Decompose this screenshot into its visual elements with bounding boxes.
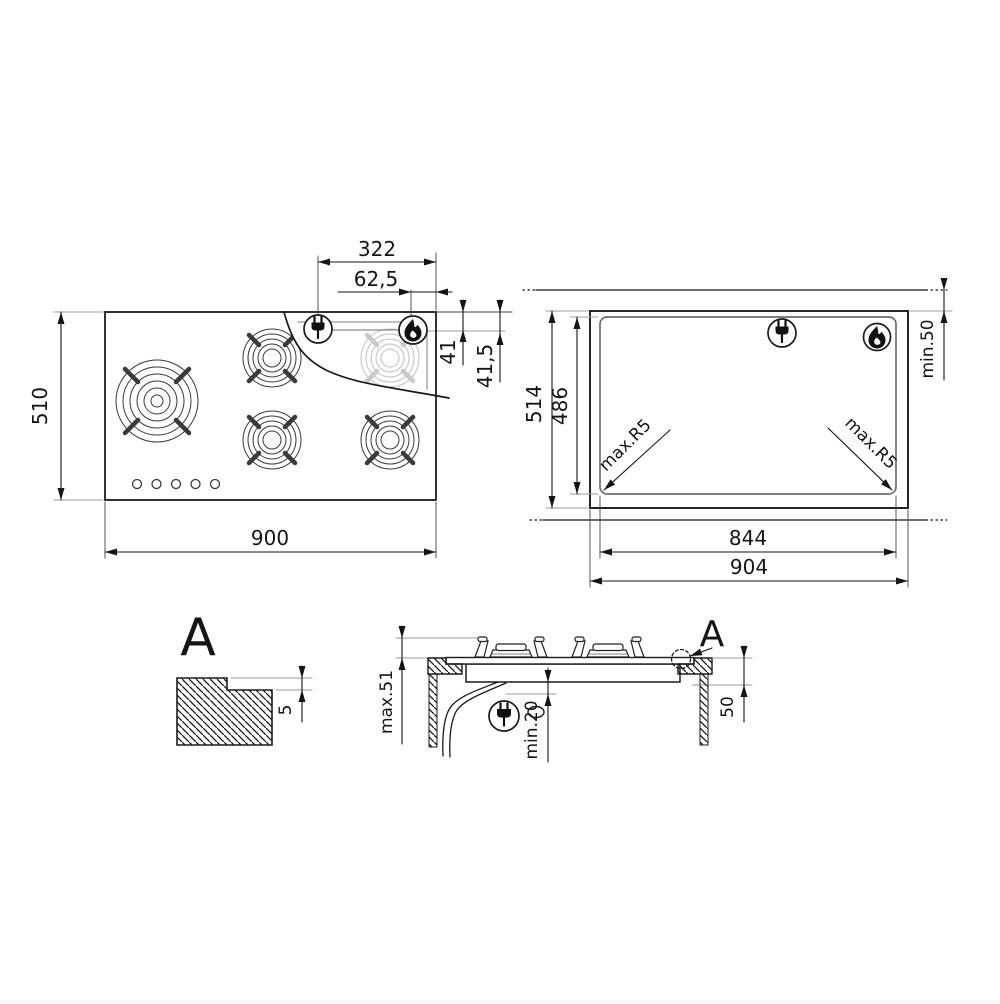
- dim-62-5: 62,5: [338, 267, 452, 316]
- burner-right-bottom: [361, 411, 419, 469]
- detail-a-title: A: [180, 608, 216, 668]
- burner-section-1: [475, 637, 547, 657]
- burner-mid-bottom: [243, 411, 301, 469]
- dim-904-label: 904: [730, 555, 768, 579]
- worktop-rebate-section: [177, 678, 272, 745]
- dim-max51-label: max.51: [377, 670, 397, 734]
- dim-min50: min.50: [910, 279, 952, 380]
- glass-panel-section: [446, 658, 694, 665]
- burner-mid-top: [243, 329, 301, 387]
- technical-diagram: 322 62,5 41 41,5: [0, 0, 1000, 1000]
- power-plug-icon: [768, 319, 796, 347]
- installation-section-view: max.51 min.20 50 A: [377, 614, 752, 762]
- hob-body-section: [466, 664, 680, 682]
- cabinet-panel-right: [700, 674, 708, 745]
- control-knobs: [133, 480, 220, 489]
- dim-62-5-label: 62,5: [354, 267, 399, 291]
- dim-322-label: 322: [358, 237, 396, 261]
- burner-large: [116, 360, 198, 442]
- dim-41-label: 41: [436, 339, 460, 364]
- power-plug-icon: [489, 701, 519, 731]
- section-detail-label: A: [700, 614, 725, 655]
- dim-510-label: 510: [28, 387, 52, 425]
- dim-41-5-label: 41,5: [473, 344, 497, 389]
- installation-diagram-page: 322 62,5 41 41,5: [0, 0, 1000, 1000]
- dim-50: 50: [718, 646, 744, 722]
- dim-844-label: 844: [729, 526, 767, 550]
- dim-41-5: 41,5: [473, 300, 500, 388]
- dim-514-label: 514: [522, 385, 546, 423]
- dim-900-label: 900: [251, 526, 289, 550]
- dim-max51: max.51: [377, 626, 402, 744]
- power-plug-icon: [304, 315, 332, 343]
- cutout-plan-view: min.50 514 486 max.R5 max.R5: [522, 279, 952, 587]
- dim-50-label: 50: [718, 696, 738, 718]
- detail-a-view: A 5: [177, 608, 312, 745]
- dim-5-label: 5: [276, 705, 296, 716]
- dim-900: 900: [105, 502, 436, 558]
- hob-top-view: 322 62,5 41 41,5: [28, 237, 512, 558]
- gas-flame-icon: [864, 324, 891, 351]
- dim-min20-label: min.20: [522, 700, 542, 759]
- burner-section-2: [572, 637, 644, 657]
- dim-510: 510: [28, 312, 103, 500]
- dim-486-label: 486: [548, 387, 572, 425]
- cabinet-panel-left: [429, 674, 437, 747]
- dim-min50-label: min.50: [918, 319, 938, 378]
- hob-footprint-outline: [590, 311, 908, 508]
- gas-flame-icon: [399, 316, 427, 344]
